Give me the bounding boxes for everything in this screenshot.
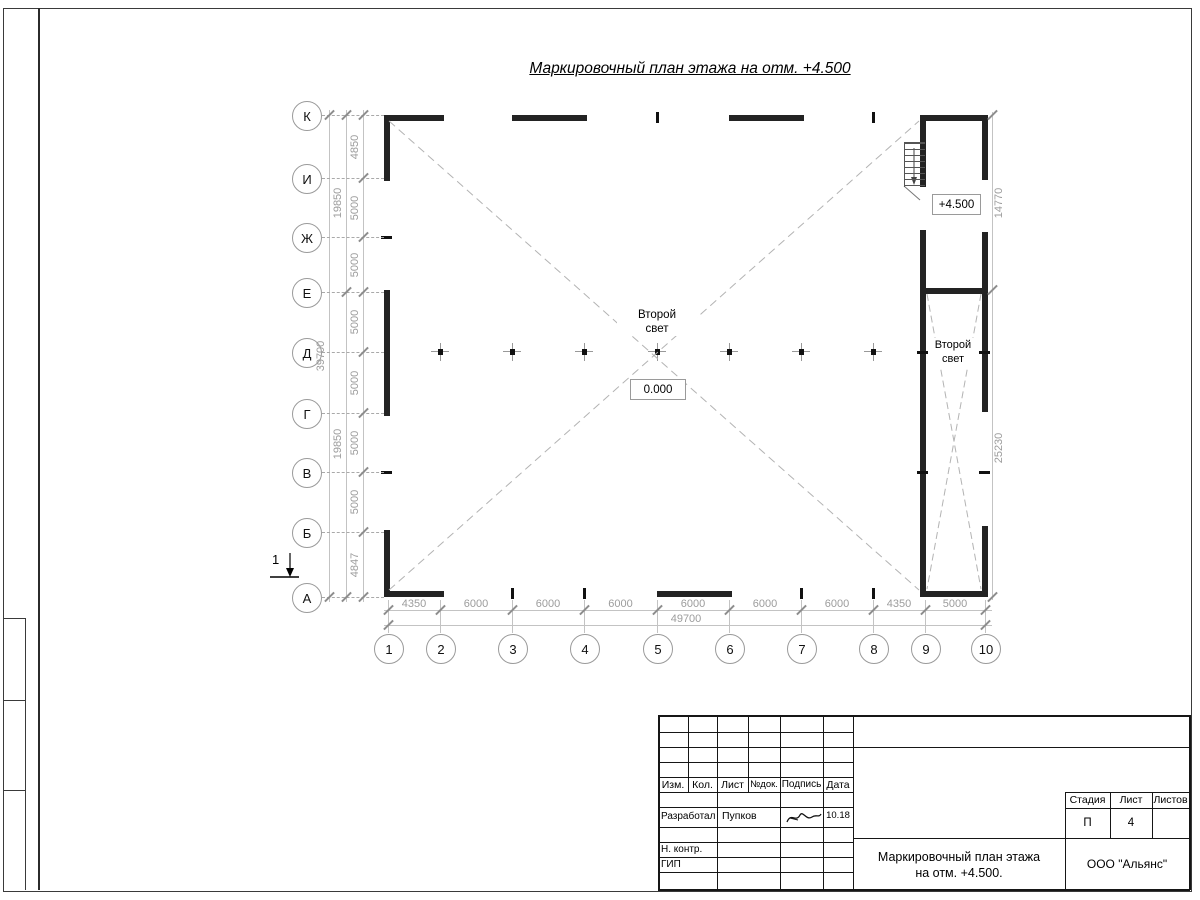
dim-line-bottom-chain xyxy=(384,610,992,611)
dim-right-chain: 14770 xyxy=(993,173,1005,233)
tb-company: ООО "Альянс" xyxy=(1065,858,1189,870)
dim-bottom-chain: 6000 xyxy=(735,598,795,610)
dim-right-chain: 25230 xyxy=(993,418,1005,478)
wall-segment xyxy=(982,115,988,180)
wall-segment xyxy=(920,288,988,294)
dim-left-chain: 5000 xyxy=(349,413,361,473)
axis-bubble-row: Б xyxy=(292,518,322,548)
dim-left-chain: 5000 xyxy=(349,472,361,532)
tb-role-gip: ГИП xyxy=(661,859,717,871)
tb-role-developer: Разработал xyxy=(661,811,717,823)
tb-header-ndok: №док. xyxy=(748,779,780,791)
wall-segment xyxy=(512,115,587,121)
dim-left-chain: 5000 xyxy=(349,353,361,413)
dim-bottom-chain: 6000 xyxy=(518,598,578,610)
wall-segment xyxy=(384,290,390,416)
dim-bottom-total: 49700 xyxy=(656,613,716,625)
dim-left-chain: 5000 xyxy=(349,235,361,295)
dim-left-total: 39700 xyxy=(315,326,327,386)
column-mark xyxy=(727,349,732,355)
axis-bubble-col: 4 xyxy=(570,634,600,664)
axis-bubble-col: 6 xyxy=(715,634,745,664)
wall-segment xyxy=(920,230,926,597)
annex-second-light-label: Второй свет xyxy=(929,338,977,366)
dim-bottom-chain: 6000 xyxy=(807,598,867,610)
axis-bubble-row: В xyxy=(292,458,322,488)
wall-segment xyxy=(384,530,390,597)
tb-header-data: Дата xyxy=(823,779,853,791)
wall-segment xyxy=(384,115,390,181)
plan-layer: КИЖЕДГВБА1234567891048505000500050005000… xyxy=(0,0,1200,900)
hall-second-light-line2: свет xyxy=(645,323,668,335)
dim-bottom-chain: 6000 xyxy=(446,598,506,610)
dim-left-chain: 5000 xyxy=(349,292,361,352)
tb-doc-title-line2: на отм. +4.500. xyxy=(915,866,1002,880)
wall-segment xyxy=(920,115,988,121)
tb-header-izm: Изм. xyxy=(658,779,688,791)
axis-leader-col xyxy=(729,600,730,633)
axis-bubble-col: 10 xyxy=(971,634,1001,664)
axis-bubble-row: Ж xyxy=(292,223,322,253)
tb-doc-title-line1: Маркировочный план этажа xyxy=(878,850,1040,864)
column-mark xyxy=(582,349,587,355)
tb-role-ncontrol: Н. контр. xyxy=(661,844,717,856)
dim-line-left xyxy=(346,110,347,602)
tb-header-list: Лист xyxy=(717,779,748,791)
column-mark xyxy=(510,349,515,355)
dim-left-chain: 4850 xyxy=(349,117,361,177)
hall-second-light-line1: Второй xyxy=(638,309,676,321)
axis-leader-row xyxy=(322,597,384,598)
axis-bubble-col: 1 xyxy=(374,634,404,664)
tb-date-developer: 10.18 xyxy=(823,810,853,822)
tb-stage-header: Стадия xyxy=(1065,794,1110,806)
tb-doc-title: Маркировочный план этажа на отм. +4.500. xyxy=(853,849,1065,881)
tb-header-podpis: Подпись xyxy=(780,779,823,791)
wall-segment xyxy=(384,591,444,597)
tb-name-developer: Пупков xyxy=(722,810,778,822)
dim-bottom-chain: 5000 xyxy=(925,598,985,610)
tb-sheet-header: Лист xyxy=(1110,794,1152,806)
wall-segment xyxy=(920,591,988,597)
hall-second-light-label: Второй свет xyxy=(617,308,697,336)
axis-leader-row xyxy=(322,115,384,116)
dim-bottom-chain: 4350 xyxy=(384,598,444,610)
annex-second-light-line2: свет xyxy=(942,353,964,365)
axis-bubble-col: 9 xyxy=(911,634,941,664)
drawing-sheet: Маркировочный план этажа на отм. +4.500 … xyxy=(0,0,1200,900)
axis-bubble-row: Г xyxy=(292,399,322,429)
wall-tick xyxy=(800,588,803,599)
dim-left-mid: 19850 xyxy=(332,414,344,474)
wall-tick xyxy=(583,588,586,599)
annex-elevation-box: +4.500 xyxy=(932,194,981,215)
wall-segment xyxy=(982,526,988,597)
axis-leader-col xyxy=(985,600,986,633)
dim-bottom-chain: 6000 xyxy=(591,598,651,610)
axis-leader-col xyxy=(584,600,585,633)
wall-segment xyxy=(657,591,732,597)
wall-tick xyxy=(979,351,990,354)
column-mark xyxy=(871,349,876,355)
axis-leader-col xyxy=(512,600,513,633)
dim-line-bottom-total xyxy=(384,625,992,626)
wall-tick xyxy=(917,351,928,354)
axis-bubble-row: Е xyxy=(292,278,322,308)
wall-tick xyxy=(917,471,928,474)
tb-header-kol: Кол. xyxy=(688,779,717,791)
axis-bubble-row: А xyxy=(292,583,322,613)
wall-tick xyxy=(511,588,514,599)
dim-bottom-chain: 4350 xyxy=(869,598,929,610)
column-mark xyxy=(655,349,660,355)
dim-left-mid: 19850 xyxy=(332,173,344,233)
dim-line-left xyxy=(363,110,364,602)
wall-segment xyxy=(982,232,988,412)
wall-segment xyxy=(729,115,804,121)
wall-segment xyxy=(384,115,444,121)
tb-sheets-header: Листов xyxy=(1152,794,1189,806)
wall-tick xyxy=(979,471,990,474)
tb-stage-value: П xyxy=(1065,817,1110,829)
axis-bubble-row: И xyxy=(292,164,322,194)
axis-bubble-col: 8 xyxy=(859,634,889,664)
dim-line-left xyxy=(329,110,330,602)
wall-tick xyxy=(872,112,875,123)
tb-sheet-value: 4 xyxy=(1110,817,1152,829)
column-mark xyxy=(799,349,804,355)
column-mark xyxy=(438,349,443,355)
annex-second-light-line1: Второй xyxy=(935,339,971,351)
axis-bubble-col: 3 xyxy=(498,634,528,664)
axis-leader-row xyxy=(322,532,384,533)
wall-tick xyxy=(656,112,659,123)
axis-bubble-col: 7 xyxy=(787,634,817,664)
dim-left-chain: 4847 xyxy=(349,535,361,595)
axis-bubble-row: К xyxy=(292,101,322,131)
axis-leader-col xyxy=(801,600,802,633)
hall-elevation-box: 0.000 xyxy=(630,379,686,400)
dim-bottom-chain: 6000 xyxy=(663,598,723,610)
axis-bubble-col: 2 xyxy=(426,634,456,664)
dim-left-chain: 5000 xyxy=(349,178,361,238)
axis-bubble-col: 5 xyxy=(643,634,673,664)
section-mark-label: 1 xyxy=(272,552,279,567)
stair-icon xyxy=(904,142,925,187)
